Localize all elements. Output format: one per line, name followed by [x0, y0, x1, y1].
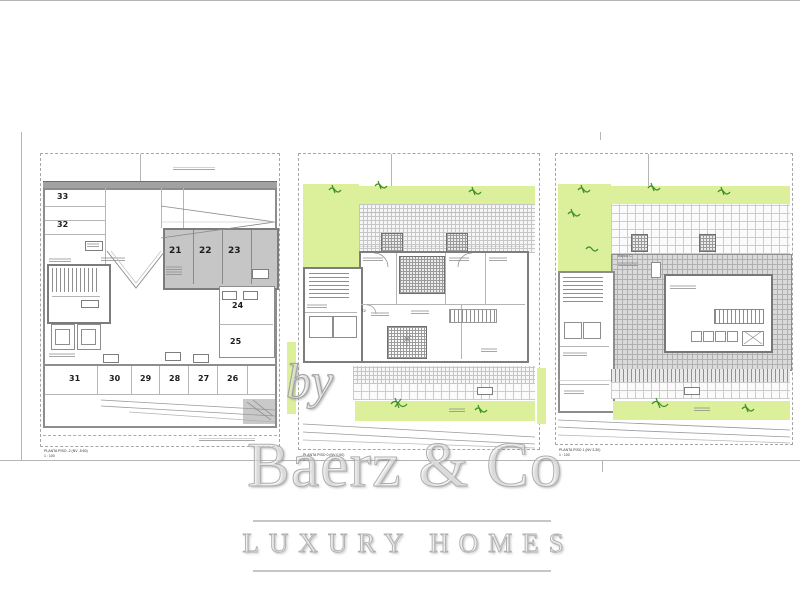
panel-garage-plan: 33 32 21 22 23 24 25 [40, 153, 280, 447]
watermark-rule-top [253, 520, 551, 522]
architectural-sheet: 33 32 21 22 23 24 25 [0, 0, 800, 600]
sheet-edge-line-left [21, 132, 22, 460]
garage-linework [41, 154, 279, 446]
watermark-by: by [286, 352, 333, 410]
plan-title-garage: PLANTA PISO -2 (NV -5.60) [44, 449, 88, 453]
panel-floor-plan: T2 P [298, 153, 540, 450]
sheet-tick [602, 460, 603, 472]
sheet-fold-line-top [0, 0, 800, 1]
sheet-tick [600, 132, 601, 140]
watermark-brand: Baerz & Co [235, 428, 575, 502]
roof-linework [556, 154, 792, 444]
garden-sliver [537, 368, 546, 424]
watermark-tagline: LUXURY HOMES [238, 528, 578, 559]
plan-scale: 1 : 100 [44, 454, 55, 458]
panel-roof-plan: Bloco C [555, 153, 793, 445]
watermark-rule-bottom [253, 570, 551, 572]
floor-linework [299, 154, 539, 449]
